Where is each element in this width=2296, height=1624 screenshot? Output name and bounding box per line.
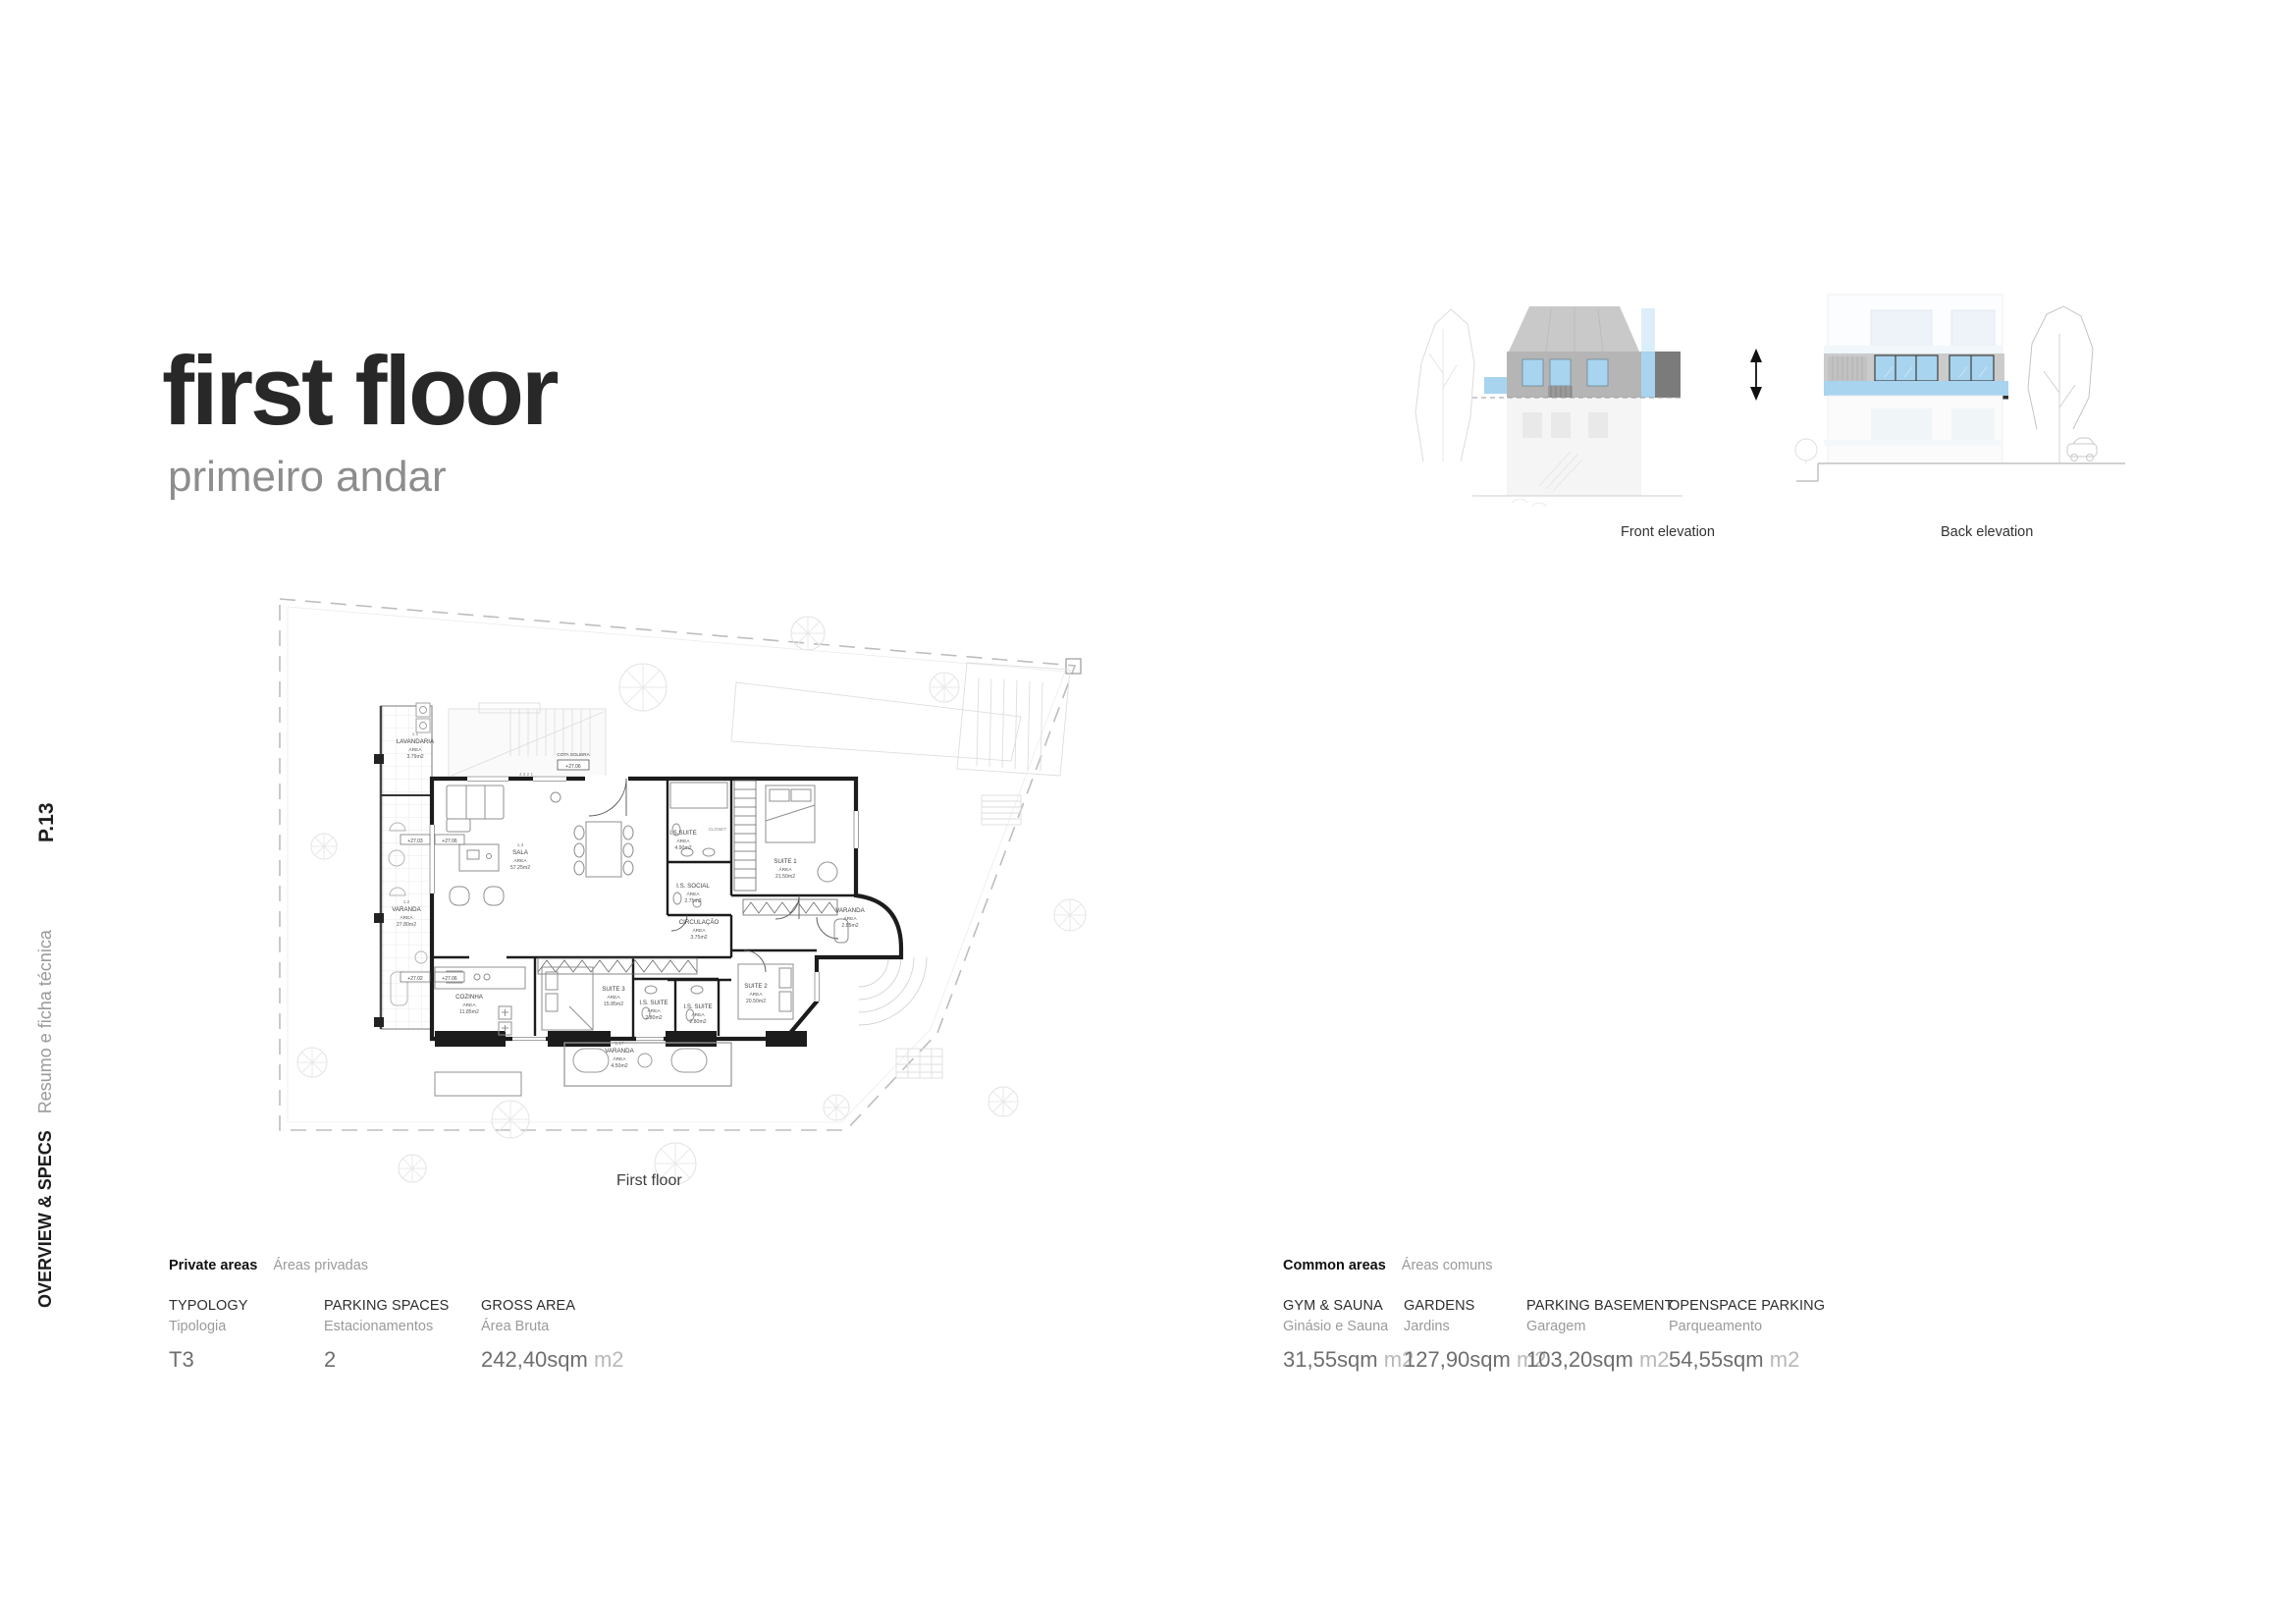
svg-text:LAVANDARIA: LAVANDARIA xyxy=(397,738,435,745)
spec-value: 31,55sqm m2 xyxy=(1283,1347,1414,1373)
floor-plan-drawing: +27.03 +27.06 +27.02 +27.06 COTA SOLEIRA… xyxy=(245,579,1129,1208)
svg-text:ÁREA: ÁREA xyxy=(647,1007,661,1014)
svg-text:1.17: 1.17 xyxy=(615,1041,624,1046)
svg-text:3.79m2: 3.79m2 xyxy=(406,754,423,760)
spec-label: GYM & SAUNA xyxy=(1283,1298,1414,1314)
spec-label: GARDENS xyxy=(1404,1298,1547,1314)
window xyxy=(1550,359,1571,386)
balcony-band xyxy=(1824,381,2008,396)
svg-text:ÁREA: ÁREA xyxy=(400,914,413,921)
dark-volume xyxy=(1655,352,1681,398)
spec-label: PARKING BASEMENT xyxy=(1526,1298,1674,1314)
spec-gardens: GARDENS Jardins 127,90sqm m2 xyxy=(1404,1298,1547,1373)
spec-value: 2 xyxy=(324,1347,449,1373)
svg-text:20.50m2: 20.50m2 xyxy=(746,999,766,1004)
spec-sublabel: Parqueamento xyxy=(1669,1319,1825,1334)
svg-text:2.85m2: 2.85m2 xyxy=(841,923,858,929)
floor-plan-caption: First floor xyxy=(616,1172,682,1190)
svg-text:2.80m2: 2.80m2 xyxy=(645,1015,662,1021)
svg-text:4 3 2 1: 4 3 2 1 xyxy=(519,772,533,777)
spec-value: 54,55sqm m2 xyxy=(1669,1347,1825,1373)
svg-text:1.3: 1.3 xyxy=(517,842,524,847)
svg-text:15.85m2: 15.85m2 xyxy=(604,1001,623,1007)
private-areas-title-pt: Áreas privadas xyxy=(273,1258,368,1273)
spec-label: OPENSPACE PARKING xyxy=(1669,1298,1825,1314)
floor-plan-figure: +27.03 +27.06 +27.02 +27.06 COTA SOLEIRA… xyxy=(245,579,1129,1208)
svg-text:ÁREA: ÁREA xyxy=(408,746,422,753)
svg-text:4.50m2: 4.50m2 xyxy=(611,1063,627,1069)
balcony-slab xyxy=(1484,377,1507,394)
spec-sublabel: Tipologia xyxy=(169,1319,248,1334)
svg-text:SUITE 2: SUITE 2 xyxy=(744,983,768,990)
section-label-en: OVERVIEW & SPECS xyxy=(35,1130,55,1308)
svg-text:I.S. SUITE: I.S. SUITE xyxy=(639,1000,667,1006)
spec-sublabel: Ginásio e Sauna xyxy=(1283,1319,1414,1334)
svg-text:I.S. SUITE: I.S. SUITE xyxy=(683,1003,712,1010)
svg-text:ÁREA: ÁREA xyxy=(613,1056,626,1062)
back-elevation xyxy=(1795,295,2125,481)
elevations-drawing xyxy=(1399,285,2164,513)
wall-pier xyxy=(374,913,384,923)
south-terrace xyxy=(564,1043,731,1086)
railing xyxy=(1548,386,1573,398)
svg-text:2.80m2: 2.80m2 xyxy=(689,1019,706,1025)
room-label-closet: CLOSET xyxy=(709,827,727,832)
common-areas-section: Common areas Áreas comuns GYM & SAUNA Gi… xyxy=(1283,1258,2166,1273)
svg-text:ÁREA: ÁREA xyxy=(513,857,527,864)
svg-text:COZINHA: COZINHA xyxy=(455,994,484,1001)
svg-text:+27.02: +27.02 xyxy=(407,976,423,982)
svg-text:57.25m2: 57.25m2 xyxy=(510,865,530,871)
svg-text:+27.06: +27.06 xyxy=(565,764,581,770)
svg-text:VARANDA: VARANDA xyxy=(392,906,421,913)
brochure-page: P.13 OVERVIEW & SPECS Resumo e ficha téc… xyxy=(0,0,2296,1624)
svg-text:1.2: 1.2 xyxy=(403,899,410,904)
svg-text:SUITE 1: SUITE 1 xyxy=(774,858,797,865)
spec-value: 103,20sqm m2 xyxy=(1526,1347,1674,1373)
spec-label: GROSS AREA xyxy=(481,1298,624,1314)
spec-openspace-parking: OPENSPACE PARKING Parqueamento 54,55sqm … xyxy=(1669,1298,1825,1373)
page-title: first floor xyxy=(162,342,556,439)
svg-text:ÁREA: ÁREA xyxy=(607,994,620,1001)
svg-text:VARANDA: VARANDA xyxy=(835,907,865,914)
svg-text:VARANDA: VARANDA xyxy=(605,1048,634,1055)
svg-text:27.80m2: 27.80m2 xyxy=(397,922,416,928)
svg-text:ÁREA: ÁREA xyxy=(843,915,857,922)
spec-sublabel: Estacionamentos xyxy=(324,1319,449,1334)
svg-text:21.50m2: 21.50m2 xyxy=(775,874,795,880)
svg-text:+27.03: +27.03 xyxy=(407,839,423,844)
spec-gym-sauna: GYM & SAUNA Ginásio e Sauna 31,55sqm m2 xyxy=(1283,1298,1414,1373)
svg-text:3.75m2: 3.75m2 xyxy=(690,935,707,941)
window xyxy=(1875,355,1938,381)
spec-value: T3 xyxy=(169,1347,248,1373)
svg-text:ÁREA: ÁREA xyxy=(749,991,763,998)
svg-text:2.75m2: 2.75m2 xyxy=(684,898,701,904)
window xyxy=(1587,359,1608,386)
svg-text:CLOSET: CLOSET xyxy=(709,827,727,832)
spec-sublabel: Jardins xyxy=(1404,1319,1547,1334)
svg-text:COTA SOLEIRA: COTA SOLEIRA xyxy=(557,752,590,757)
svg-text:I.S.SUITE: I.S.SUITE xyxy=(669,830,697,837)
bush xyxy=(1795,439,1817,460)
svg-text:+27.06: +27.06 xyxy=(442,839,457,844)
svg-text:11.85m2: 11.85m2 xyxy=(459,1009,479,1015)
elevations-figure xyxy=(1399,285,2164,513)
spec-label: PARKING SPACES xyxy=(324,1298,449,1314)
page-number: P.13 xyxy=(35,803,59,843)
spec-value: 242,40sqm m2 xyxy=(481,1347,624,1373)
section-label-pt: Resumo e ficha técnica xyxy=(35,930,55,1113)
svg-text:ÁREA: ÁREA xyxy=(691,1011,705,1018)
private-areas-title-en: Private areas xyxy=(169,1258,257,1273)
svg-text:SALA: SALA xyxy=(512,849,529,856)
svg-text:ÁREA: ÁREA xyxy=(686,891,700,897)
roof xyxy=(1509,306,1639,352)
svg-text:SUITE 3: SUITE 3 xyxy=(602,986,625,993)
spec-typology: TYPOLOGY Tipologia T3 xyxy=(169,1298,248,1373)
svg-text:ÁREA: ÁREA xyxy=(692,927,706,934)
wall-pier xyxy=(374,1017,384,1027)
spec-parking-spaces: PARKING SPACES Estacionamentos 2 xyxy=(324,1298,449,1373)
page-subtitle: primeiro andar xyxy=(168,454,447,501)
spec-parking-basement: PARKING BASEMENT Garagem 103,20sqm m2 xyxy=(1526,1298,1674,1373)
svg-text:1.1: 1.1 xyxy=(412,731,419,736)
kitchen-island xyxy=(435,1072,521,1096)
spec-value: 127,90sqm m2 xyxy=(1404,1347,1547,1373)
svg-text:CIRCULAÇÃO: CIRCULAÇÃO xyxy=(679,919,720,926)
spec-sublabel: Área Bruta xyxy=(481,1319,624,1334)
common-areas-header: Common areas Áreas comuns xyxy=(1283,1258,2166,1273)
section-label: OVERVIEW & SPECS Resumo e ficha técnica xyxy=(35,930,56,1308)
spec-gross-area: GROSS AREA Área Bruta 242,40sqm m2 xyxy=(481,1298,624,1373)
car xyxy=(2067,438,2097,461)
spec-sublabel: Garagem xyxy=(1526,1319,1674,1334)
private-areas-section: Private areas Áreas privadas TYPOLOGY Ti… xyxy=(169,1258,856,1273)
private-areas-header: Private areas Áreas privadas xyxy=(169,1258,856,1273)
tree xyxy=(2028,306,2093,429)
common-areas-title-pt: Áreas comuns xyxy=(1402,1258,1493,1273)
back-elevation-label: Back elevation xyxy=(1941,524,2033,540)
tree xyxy=(1415,309,1474,461)
common-areas-title-en: Common areas xyxy=(1283,1258,1386,1273)
svg-text:ÁREA: ÁREA xyxy=(778,866,792,873)
front-elevation xyxy=(1415,306,1682,507)
front-elevation-label: Front elevation xyxy=(1621,524,1715,540)
svg-text:I.S. SOCIAL: I.S. SOCIAL xyxy=(676,883,710,890)
svg-text:+27.06: +27.06 xyxy=(442,976,457,982)
svg-text:ÁREA: ÁREA xyxy=(676,838,690,844)
wall-pier xyxy=(374,754,384,764)
svg-text:4.90m2: 4.90m2 xyxy=(674,845,691,851)
window xyxy=(1522,359,1543,386)
svg-text:ÁREA: ÁREA xyxy=(462,1001,476,1008)
spec-label: TYPOLOGY xyxy=(169,1298,248,1314)
double-arrow-icon xyxy=(1750,349,1762,401)
